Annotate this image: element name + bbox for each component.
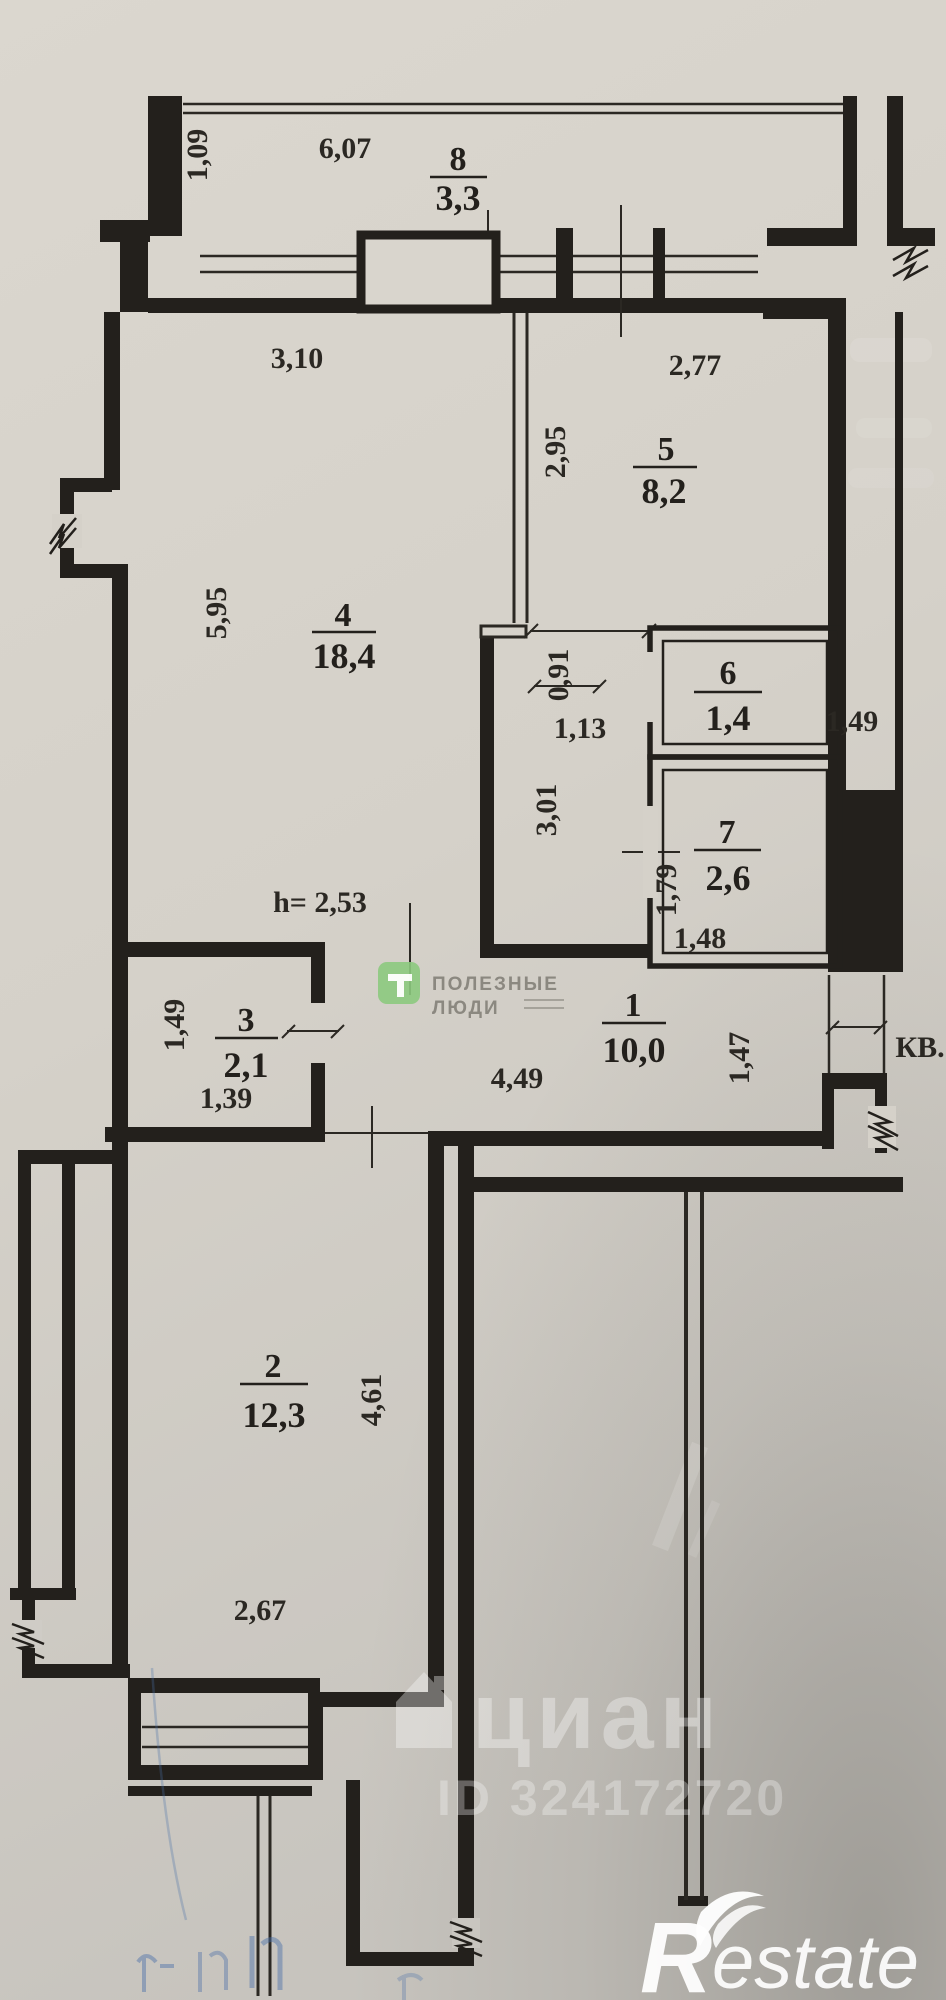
dim-room7-bottom: 1,48 <box>674 922 727 955</box>
dim-corridor-top: 1,13 <box>554 712 607 745</box>
dim-corridor-side: 3,01 <box>530 784 563 837</box>
dim-entry-side: 1,47 <box>723 1032 756 1085</box>
room-1-area: 10,0 <box>603 1030 666 1070</box>
dim-room5-side: 2,95 <box>539 426 572 479</box>
room-4-number: 4 <box>335 597 352 634</box>
dim-balcony-width: 6,07 <box>319 132 372 165</box>
watermark-cian-text: циан <box>472 1663 723 1769</box>
entry-apartment-label: КВ. <box>895 1031 944 1064</box>
dim-room7-side: 1,79 <box>650 864 683 917</box>
room-8-number: 8 <box>450 141 467 178</box>
room-4-area: 18,4 <box>313 636 376 676</box>
room-2-area: 12,3 <box>243 1395 306 1435</box>
room-6-area: 1,4 <box>706 698 751 738</box>
floorplan-photo: 8 3,3 5 8,2 4 18,4 6 1,4 7 2,6 3 2,1 1 1… <box>0 0 946 2000</box>
watermark-cian-id: ID 324172720 <box>437 1770 787 1826</box>
watermark-poleznye-line2: ЛЮДИ <box>432 998 500 1019</box>
room-6-number: 6 <box>720 655 737 692</box>
floorplan-svg: 8 3,3 5 8,2 4 18,4 6 1,4 7 2,6 3 2,1 1 1… <box>0 0 946 2000</box>
dim-room5-top: 2,77 <box>669 349 722 382</box>
room-5-area: 8,2 <box>642 471 687 511</box>
dim-room3-side: 1,49 <box>158 999 191 1052</box>
room-7-area: 2,6 <box>706 858 751 898</box>
dim-ceiling-height: h= 2,53 <box>273 886 367 919</box>
room-3-number: 3 <box>238 1002 255 1039</box>
dim-room2-bottom: 2,67 <box>234 1594 287 1627</box>
room-3-area: 2,1 <box>224 1045 269 1085</box>
dim-room6-door: 0,91 <box>542 649 575 702</box>
balcony-door-block <box>361 235 496 309</box>
dim-room4-top: 3,10 <box>271 342 324 375</box>
dim-room4-side: 5,95 <box>200 587 233 640</box>
watermark-poleznye-line1: ПОЛЕЗНЫЕ <box>432 974 559 995</box>
room-1-number: 1 <box>625 987 642 1024</box>
room-8-area: 3,3 <box>436 178 481 218</box>
dim-balcony-depth: 1,09 <box>181 129 214 182</box>
restate-suffix: estate <box>712 1920 919 2000</box>
room-2-number: 2 <box>265 1348 282 1385</box>
room-7-number: 7 <box>719 814 736 851</box>
dim-room6-width: 1,49 <box>826 705 879 738</box>
dim-room3-bottom: 1,39 <box>200 1082 253 1115</box>
restate-r: R <box>640 1902 712 2000</box>
dim-room2-side: 4,61 <box>355 1374 388 1427</box>
room-5-number: 5 <box>658 431 675 468</box>
dim-hall-bottom: 4,49 <box>491 1062 544 1095</box>
